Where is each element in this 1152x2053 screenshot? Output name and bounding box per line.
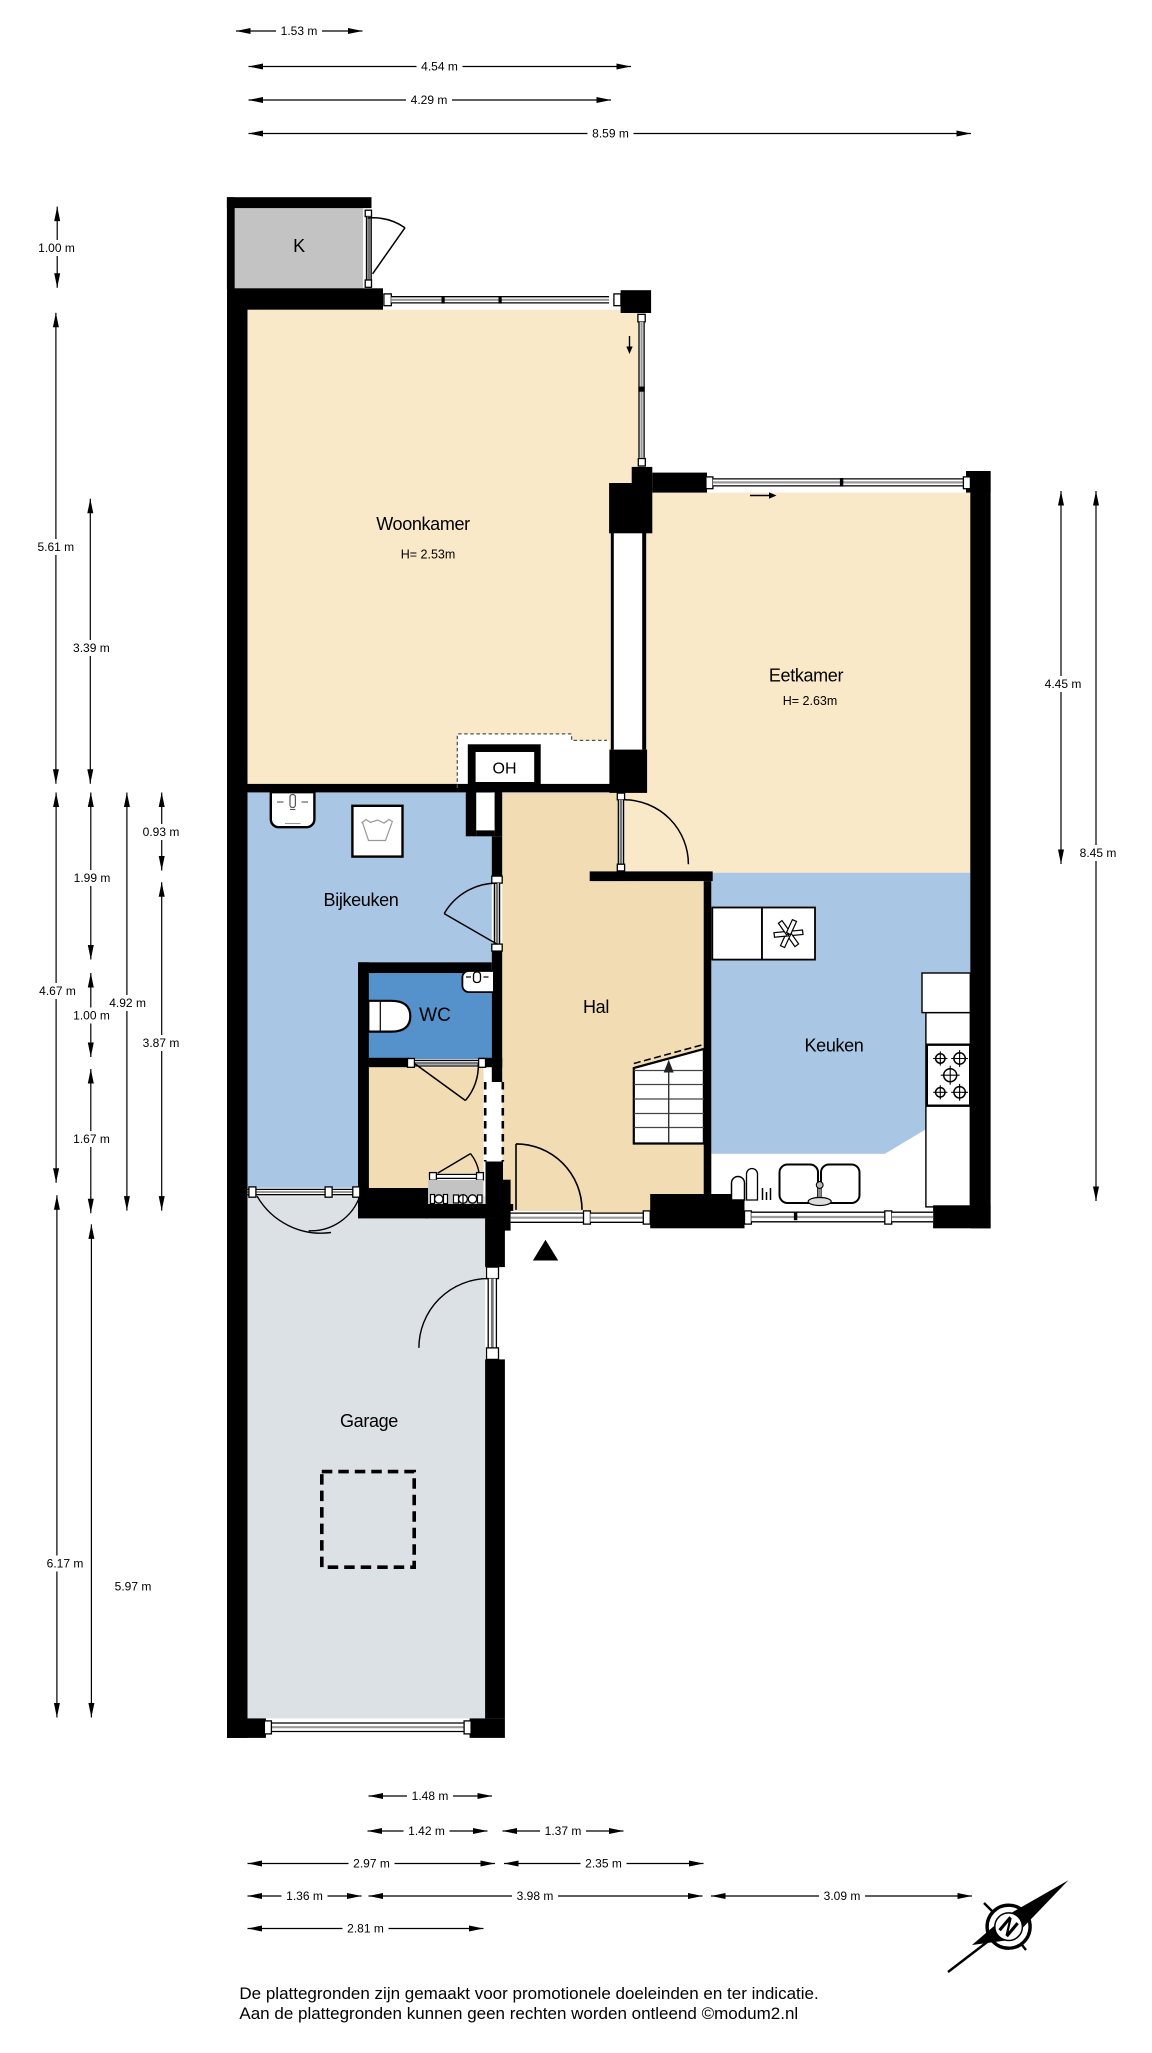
- svg-text:Keuken: Keuken: [805, 1036, 864, 1056]
- svg-text:Hal: Hal: [583, 997, 609, 1017]
- svg-text:1.99 m: 1.99 m: [74, 871, 111, 885]
- svg-text:3.09 m: 3.09 m: [824, 1889, 861, 1903]
- svg-text:H= 2.63m: H= 2.63m: [783, 694, 838, 708]
- svg-text:4.54 m: 4.54 m: [421, 60, 458, 74]
- svg-text:1.42 m: 1.42 m: [408, 1824, 445, 1838]
- svg-text:3.98 m: 3.98 m: [517, 1889, 554, 1903]
- svg-text:8.45 m: 8.45 m: [1080, 846, 1117, 860]
- svg-text:Aan de plattegronden kunnen ge: Aan de plattegronden kunnen geen rechten…: [239, 2004, 798, 2023]
- svg-text:Eetkamer: Eetkamer: [769, 666, 844, 686]
- svg-text:2.81 m: 2.81 m: [347, 1922, 384, 1936]
- svg-text:1.37 m: 1.37 m: [545, 1824, 582, 1838]
- svg-text:3.87 m: 3.87 m: [143, 1036, 180, 1050]
- svg-text:8.59 m: 8.59 m: [592, 127, 629, 141]
- svg-text:H= 2.53m: H= 2.53m: [401, 548, 456, 562]
- svg-text:Woonkamer: Woonkamer: [376, 514, 470, 534]
- svg-text:2.35 m: 2.35 m: [585, 1857, 622, 1871]
- svg-text:4.45 m: 4.45 m: [1045, 677, 1082, 691]
- svg-text:Garage: Garage: [340, 1411, 398, 1431]
- svg-text:3.39 m: 3.39 m: [73, 641, 110, 655]
- svg-text:5.97 m: 5.97 m: [115, 1580, 152, 1594]
- svg-text:1.00 m: 1.00 m: [73, 1009, 110, 1023]
- svg-text:OH: OH: [493, 761, 517, 778]
- svg-text:1.67 m: 1.67 m: [73, 1132, 110, 1146]
- svg-text:2.97 m: 2.97 m: [353, 1857, 390, 1871]
- svg-text:WC: WC: [419, 1005, 451, 1026]
- svg-text:6.17 m: 6.17 m: [47, 1557, 84, 1571]
- svg-text:1.36 m: 1.36 m: [286, 1889, 323, 1903]
- svg-text:1.00 m: 1.00 m: [38, 241, 75, 255]
- svg-text:1.48 m: 1.48 m: [412, 1789, 449, 1803]
- svg-text:Bijkeuken: Bijkeuken: [324, 890, 399, 910]
- svg-text:5.61 m: 5.61 m: [37, 540, 74, 554]
- svg-text:K: K: [293, 236, 305, 256]
- svg-text:4.92 m: 4.92 m: [109, 996, 146, 1010]
- svg-text:4.29 m: 4.29 m: [411, 93, 448, 107]
- svg-text:De plattegronden zijn gemaakt: De plattegronden zijn gemaakt voor promo…: [239, 1984, 818, 2003]
- svg-text:1.53 m: 1.53 m: [281, 24, 318, 38]
- svg-text:0.93 m: 0.93 m: [143, 825, 180, 839]
- svg-text:4.67 m: 4.67 m: [39, 984, 76, 998]
